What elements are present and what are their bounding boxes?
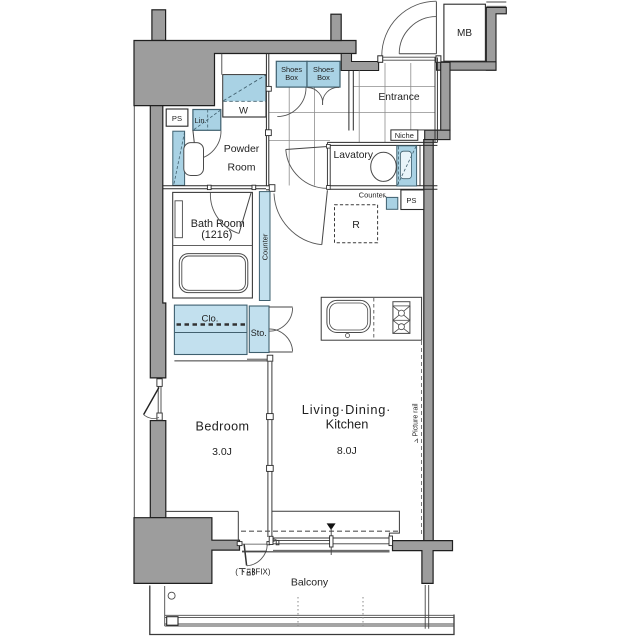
svg-text:PS: PS bbox=[172, 114, 182, 123]
svg-text:Living·Dining·: Living·Dining· bbox=[302, 402, 391, 417]
svg-text:Lavatory: Lavatory bbox=[334, 150, 374, 161]
svg-text:FIX): FIX) bbox=[255, 568, 270, 577]
svg-text:Sto.: Sto. bbox=[251, 328, 267, 338]
svg-text:(1216): (1216) bbox=[201, 229, 232, 241]
svg-text:Box: Box bbox=[317, 73, 330, 82]
svg-text:Clo.: Clo. bbox=[202, 313, 219, 324]
svg-text:W: W bbox=[239, 106, 248, 117]
svg-text:8.0J: 8.0J bbox=[337, 445, 357, 457]
svg-text:Kitchen: Kitchen bbox=[326, 416, 369, 431]
svg-text:Lin.: Lin. bbox=[195, 116, 207, 125]
svg-text:PS: PS bbox=[406, 196, 416, 205]
svg-text:(: ( bbox=[235, 568, 238, 577]
svg-text:Bedroom: Bedroom bbox=[196, 419, 250, 433]
svg-text:Counter: Counter bbox=[359, 191, 386, 200]
svg-text:3.0J: 3.0J bbox=[212, 446, 232, 458]
svg-text:R: R bbox=[352, 219, 360, 231]
svg-text:Picture rail: Picture rail bbox=[413, 403, 420, 437]
svg-text:Box: Box bbox=[285, 73, 298, 82]
svg-text:MB: MB bbox=[457, 28, 472, 39]
svg-text:Bath Room: Bath Room bbox=[191, 218, 245, 230]
svg-text:Powder: Powder bbox=[224, 143, 260, 155]
svg-text:Niche: Niche bbox=[395, 131, 414, 140]
svg-text:Room: Room bbox=[227, 162, 255, 174]
svg-text:Counter: Counter bbox=[261, 233, 270, 260]
svg-text:Balcony: Balcony bbox=[291, 577, 329, 589]
svg-text:Entrance: Entrance bbox=[378, 92, 419, 103]
